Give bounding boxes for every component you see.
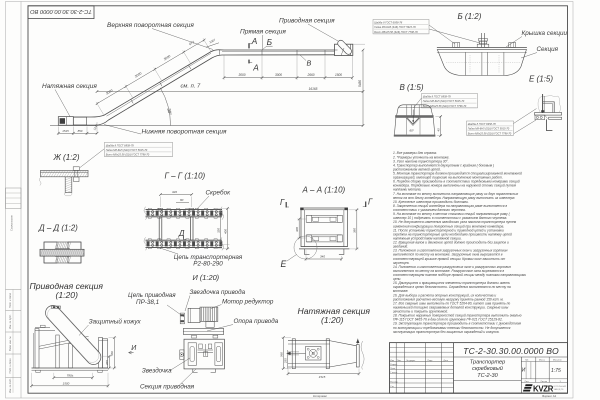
svg-text:45: 45 [437, 128, 441, 132]
svg-text:соответствующем нижнем подборе: соответствующем нижнем подборе прямой се… [393, 273, 526, 277]
svg-text:Подп.: Подп. [428, 360, 434, 362]
svg-text:см. п. 7: см. п. 7 [181, 84, 202, 90]
svg-text:Разраб.: Разраб. [390, 364, 398, 366]
svg-text:340: 340 [320, 255, 325, 259]
svg-text:скребковый: скребковый [472, 365, 503, 372]
svg-text:1:75: 1:75 [551, 368, 561, 374]
svg-text:12. Вращения валов и движение: 12. Вращения валов и движение цепей долж… [393, 241, 509, 245]
svg-text:№ докум.: № докум. [407, 359, 416, 362]
svg-text:3000: 3000 [275, 73, 282, 77]
svg-text:3000: 3000 [238, 73, 245, 77]
svg-text:Изм: Изм [390, 360, 394, 362]
svg-text:Шайба 8 ГОСТ 6958-78: Шайба 8 ГОСТ 6958-78 [423, 95, 452, 99]
svg-text:2660: 2660 [306, 73, 314, 77]
svg-text:Защитный кожух: Защитный кожух [89, 318, 142, 326]
svg-text:Р2-80-290: Р2-80-290 [193, 260, 223, 267]
svg-text:300: 300 [295, 227, 299, 232]
svg-text:ПР-38,1: ПР-38,1 [136, 299, 159, 306]
svg-text:Ж (1:2): Ж (1:2) [53, 153, 80, 162]
svg-text:Секция: Секция [537, 46, 559, 53]
svg-text:1515: 1515 [319, 375, 326, 379]
svg-text:Гайка М8-6Н5 (S16) ГОСТ 5915-7: Гайка М8-6Н5 (S16) ГОСТ 5915-70 [423, 99, 465, 103]
svg-text:Гайка М8-6Н5 (S16) ГОСТ 5915-7: Гайка М8-6Н5 (S16) ГОСТ 5915-70 [468, 127, 510, 131]
svg-text:5480: 5480 [358, 80, 362, 87]
svg-text:265: 265 [105, 360, 109, 366]
svg-text:Болт М8х25.58 (S16) ГОСТ 7798-: Болт М8х25.58 (S16) ГОСТ 7798-70 [374, 30, 418, 34]
svg-text:Крышка секции: Крышка секции [522, 30, 568, 37]
svg-text:Е: Е [281, 259, 287, 269]
svg-text:Нижняя поворотная секция: Нижняя поворотная секция [142, 128, 228, 135]
svg-text:850: 850 [78, 129, 83, 133]
svg-text:Лист: Лист [525, 381, 529, 383]
svg-text:Б (1:2): Б (1:2) [458, 12, 482, 21]
svg-text:Шайба 8 ГОСТ 6958-78: Шайба 8 ГОСТ 6958-78 [468, 122, 497, 126]
svg-text:560: 560 [110, 351, 114, 356]
svg-text:1500: 1500 [63, 381, 70, 385]
svg-text:А – А (1:10): А – А (1:10) [302, 186, 346, 195]
svg-text:Гайка М8-6Н5 (S16) ГОСТ 5915-7: Гайка М8-6Н5 (S16) ГОСТ 5915-70 [374, 25, 416, 29]
svg-text:400: 400 [223, 229, 227, 234]
svg-text:Болт М8х25.58 (S16) ГОСТ 7798-: Болт М8х25.58 (S16) ГОСТ 7798-70 [468, 131, 512, 135]
svg-text:Натяжная секция: Натяжная секция [42, 83, 97, 90]
svg-text:Е (1:5): Е (1:5) [529, 75, 553, 84]
svg-text:Подп. и дата: Подп. и дата [9, 292, 12, 308]
svg-text:Н.контр.: Н.контр. [390, 381, 398, 383]
svg-text:320: 320 [172, 190, 177, 194]
svg-text:Мотор редуктор: Мотор редуктор [222, 298, 274, 306]
svg-text:Масштаб: Масштаб [553, 360, 562, 362]
svg-text:Звездочка: Звездочка [142, 367, 172, 375]
svg-text:Цепь приводная: Цепь приводная [128, 291, 176, 299]
svg-text:Копировал: Копировал [313, 394, 327, 398]
svg-text:А: А [251, 36, 258, 46]
svg-text:Подп. и дата: Подп. и дата [9, 358, 12, 374]
svg-text:Приводная секция: Приводная секция [279, 17, 335, 25]
svg-text:А: А [252, 63, 259, 73]
svg-text:Масса: Масса [539, 360, 546, 362]
svg-text:1500: 1500 [335, 73, 342, 77]
svg-text:Листов: Листов [541, 381, 548, 383]
svg-text:Т.контр.: Т.контр. [390, 372, 398, 374]
svg-text:Звездочка привода: Звездочка привода [190, 288, 246, 296]
svg-text:ТС-2-30.30.00.0000 ВО: ТС-2-30.30.00.0000 ВО [463, 346, 559, 356]
svg-text:Лист: Лист [397, 360, 401, 362]
svg-text:380: 380 [353, 228, 357, 233]
svg-text:Лит.: Лит. [525, 360, 529, 362]
svg-text:Шайба 8 ГОСТ 6958-78: Шайба 8 ГОСТ 6958-78 [106, 143, 135, 147]
svg-text:Верхняя поворотная секция: Верхняя поворотная секция [107, 22, 194, 29]
svg-text:KVZR: KVZR [533, 384, 554, 393]
svg-text:16165: 16165 [309, 87, 318, 91]
svg-text:Взам. инв. №: Взам. инв. № [9, 336, 12, 351]
svg-text:Прямая секция: Прямая секция [240, 29, 286, 36]
svg-text:(1:20): (1:20) [56, 290, 79, 300]
svg-text:КОТЕЛЬНЫЙ: КОТЕЛЬНЫЙ [554, 385, 567, 388]
svg-text:ТС-2-30: ТС-2-30 [477, 373, 498, 379]
svg-text:В (1:5): В (1:5) [400, 83, 424, 92]
svg-text:(1:20): (1:20) [321, 315, 344, 325]
svg-text:Формат А2: Формат А2 [542, 394, 557, 398]
svg-text:Пров.: Пров. [390, 368, 396, 370]
svg-text:255: 255 [284, 358, 288, 364]
svg-text:60°: 60° [410, 129, 415, 133]
svg-text:Утв.: Утв. [390, 386, 394, 388]
svg-text:Д – Д (1:2): Д – Д (1:2) [38, 223, 78, 232]
svg-text:1515: 1515 [62, 129, 69, 133]
svg-text:Шайба 8 ГОСТ 6958-78: Шайба 8 ГОСТ 6958-78 [374, 21, 403, 25]
svg-text:соответствующей крышке прямой: соответствующей крышке прямой секции. Кр… [393, 257, 505, 261]
svg-text:560: 560 [279, 352, 283, 357]
svg-text:Гайка М8-6Н5 (S16) ГОСТ 5915-7: Гайка М8-6Н5 (S16) ГОСТ 5915-70 [106, 148, 148, 152]
svg-text:Транспортер: Транспортер [470, 360, 506, 366]
svg-text:80: 80 [180, 198, 184, 202]
svg-text:Согласовано: Согласовано [10, 215, 14, 231]
svg-text:И: И [522, 368, 526, 374]
svg-text:Болт М8х25.58 (S16) ГОСТ 7798-: Болт М8х25.58 (S16) ГОСТ 7798-70 [106, 153, 150, 157]
svg-text:Секция приводная: Секция приводная [140, 383, 195, 391]
svg-text:эксплуатация транспортера без: эксплуатация транспортера без защитных о… [393, 330, 500, 334]
svg-text:И (1:20): И (1:20) [193, 273, 220, 282]
svg-text:Б: Б [267, 37, 273, 47]
svg-text:780±: 780± [67, 373, 74, 377]
svg-text:Г – Г (1:10): Г – Г (1:10) [165, 171, 206, 180]
svg-text:Д: Д [178, 229, 185, 238]
svg-text:ограждения в целях безопасност: ограждения в целях безопасности. Огражде… [393, 285, 511, 289]
svg-text:ЗАВОД РФ: ЗАВОД РФ [554, 388, 565, 391]
svg-text:Скребок: Скребок [206, 189, 232, 197]
svg-text:Опора привода: Опора привода [234, 317, 279, 325]
svg-text:320: 320 [216, 228, 220, 233]
svg-text:Инв. № подл.: Инв. № подл. [9, 378, 12, 393]
svg-text:Инв. № дубл.: Инв. № дубл. [9, 314, 12, 329]
svg-text:ТС-2-30.30.00.0000 ВО: ТС-2-30.30.00.0000 ВО [30, 8, 92, 14]
svg-text:В: В [307, 59, 312, 68]
